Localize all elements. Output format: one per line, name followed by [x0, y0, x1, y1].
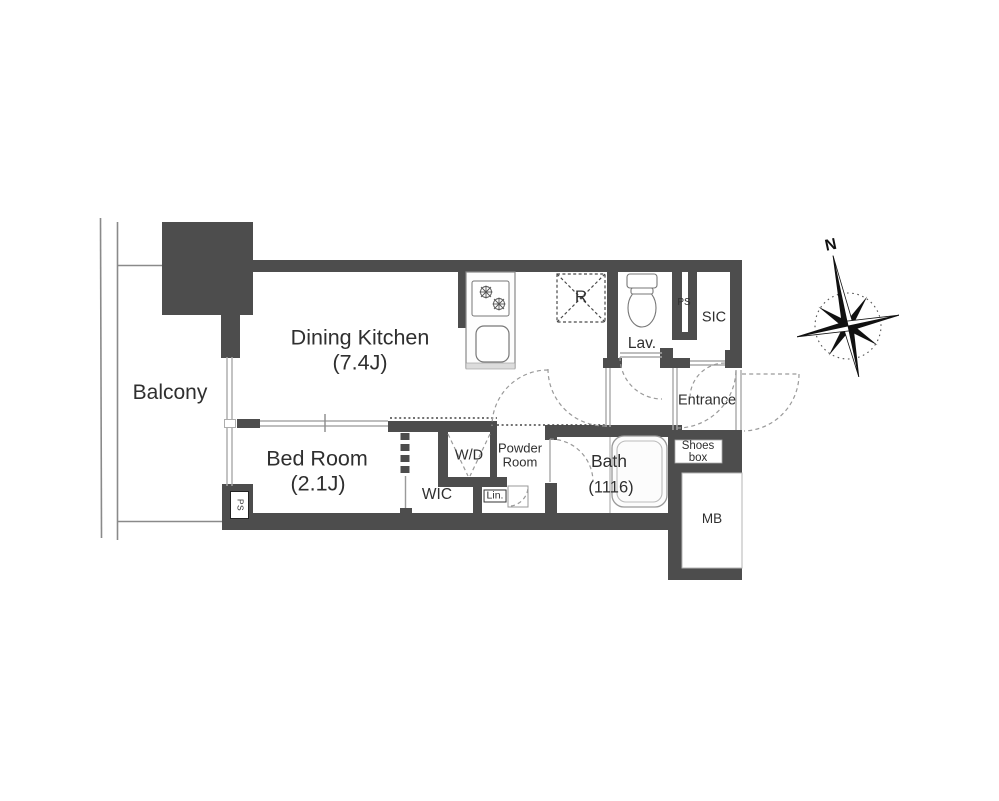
wall-segment: [388, 421, 497, 432]
powder-room-label: Powder Room: [498, 441, 542, 468]
shoes-box-label-line2: box: [682, 452, 715, 464]
bed-room-label: Bed Room: [266, 448, 368, 471]
compass-rose: N: [778, 226, 909, 387]
wall-segment: [672, 332, 697, 340]
wall-segment: [545, 425, 557, 440]
stove-icon: [472, 281, 509, 316]
powder-room-label-line2: Room: [498, 455, 542, 469]
bath-size: (1116): [588, 479, 633, 496]
toilet-icon: [627, 274, 657, 327]
balcony-label: Balcony: [133, 382, 208, 404]
lavatory-label: Lav.: [628, 336, 656, 352]
dining-kitchen-size: (7.4J): [333, 352, 388, 375]
shoes-box-label: Shoes box: [682, 440, 715, 464]
wall-segment: [545, 425, 682, 437]
powder-room-label-line1: Powder: [498, 441, 542, 455]
bedroom-pipe-space-label: PS: [235, 499, 244, 511]
wall-segment: [438, 432, 448, 482]
shoes-box-label-line1: Shoes: [682, 440, 715, 452]
refrigerator-space-label: R: [575, 288, 587, 306]
bed-room-size: (2.1J): [291, 473, 346, 496]
wall-segment: [490, 432, 497, 485]
wall-segment: [668, 568, 742, 580]
washer-dryer-label: W/D: [455, 448, 483, 463]
compass-cardinal-points: [782, 245, 910, 388]
wall-segment: [221, 315, 240, 358]
wic-label: WIC: [422, 487, 452, 503]
wall-segment: [672, 358, 690, 368]
pipe-space-label: PS: [677, 298, 690, 309]
compass-north-label: N: [823, 236, 838, 255]
kitchen-counter-icon: [466, 272, 515, 369]
floor-plan: N Balcony Dining Kitchen (7.4J) Bed Room…: [0, 0, 999, 801]
wall-segment: [237, 419, 260, 428]
wall-segment: [162, 222, 253, 315]
wall-segment: [725, 350, 742, 368]
wall-segment: [473, 478, 482, 517]
dining-kitchen-label: Dining Kitchen: [291, 327, 430, 350]
linen-closet-label: Lin.: [484, 489, 507, 502]
wall-segment: [222, 513, 682, 530]
sic-label: SIC: [702, 310, 726, 325]
entrance-label: Entrance: [678, 393, 736, 408]
bedroom-pipe-space-box: PS: [230, 491, 249, 519]
wall-segment: [607, 272, 618, 360]
kitchen-sink-icon: [476, 326, 509, 362]
wall-segment: [660, 348, 673, 368]
wall-segment: [458, 272, 466, 328]
wall-segment: [253, 260, 742, 272]
meter-box-label: MB: [702, 512, 722, 526]
wall-segment: [603, 358, 622, 368]
bath-label: Bath: [591, 452, 627, 470]
wall-segment: [545, 483, 557, 513]
